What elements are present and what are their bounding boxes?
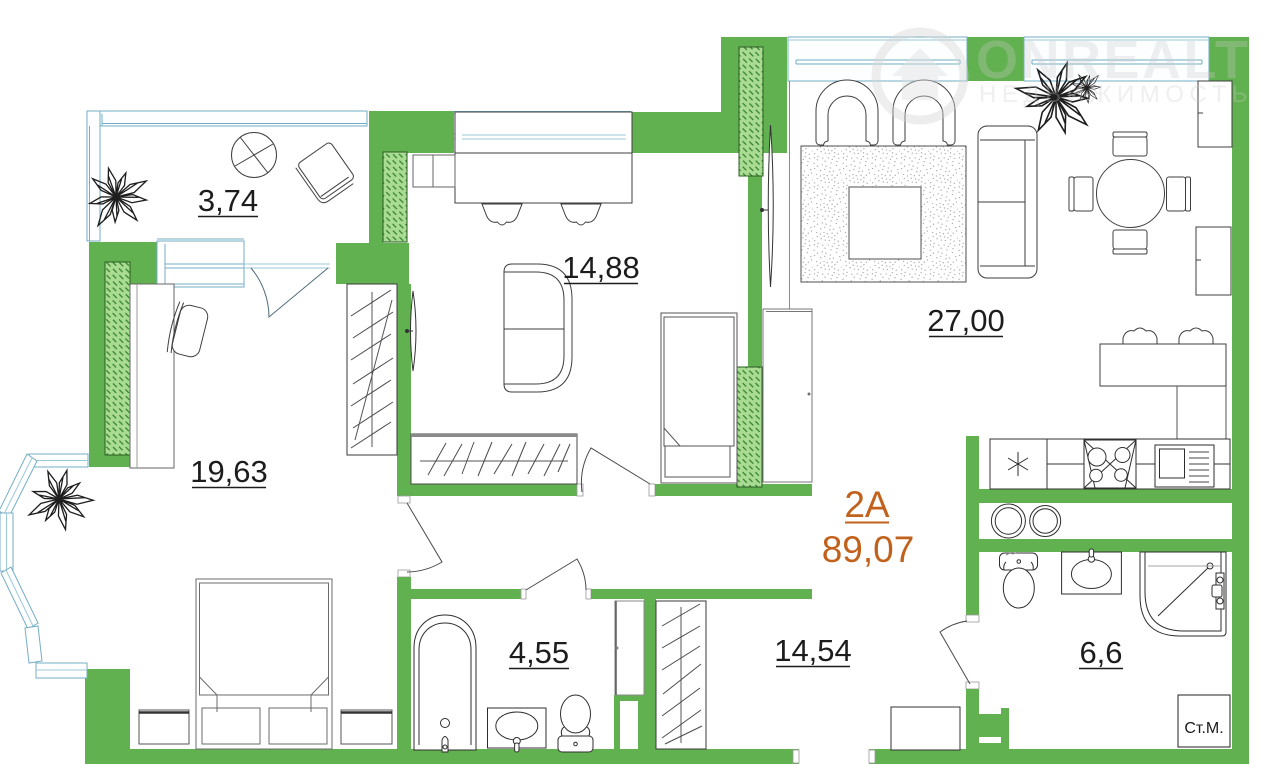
svg-text:3,74: 3,74 [198,183,258,218]
svg-text:14,88: 14,88 [562,250,640,285]
svg-text:19,63: 19,63 [190,454,268,489]
svg-text:89,07: 89,07 [822,529,915,570]
svg-text:6,6: 6,6 [1079,635,1122,670]
svg-text:14,54: 14,54 [774,633,852,668]
svg-text:27,00: 27,00 [927,303,1005,338]
svg-text:НЕДВИЖИМОСТЬ: НЕДВИЖИМОСТЬ [979,81,1253,108]
svg-text:2А: 2А [844,484,890,525]
svg-text:Ст.М.: Ст.М. [1184,720,1223,737]
svg-text:4,55: 4,55 [509,635,569,670]
